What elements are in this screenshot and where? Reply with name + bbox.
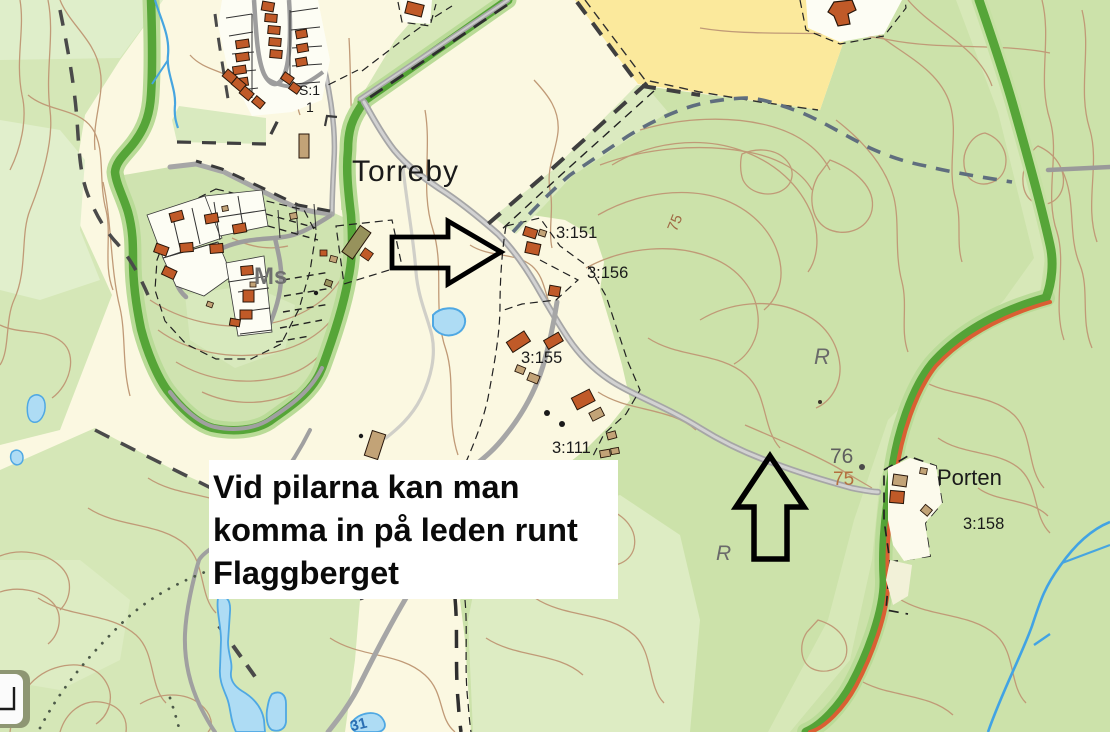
svg-text:R: R — [716, 542, 731, 565]
svg-text:Torreby: Torreby — [352, 155, 459, 188]
svg-text:Porten: Porten — [937, 465, 1002, 490]
svg-text:Vid pilarna kan man: Vid pilarna kan man — [213, 469, 519, 505]
svg-text:3:151: 3:151 — [556, 224, 597, 242]
svg-text:3:156: 3:156 — [587, 264, 628, 282]
svg-text:3:111: 3:111 — [552, 439, 591, 457]
svg-text:3:158: 3:158 — [963, 515, 1004, 533]
svg-text:1: 1 — [306, 99, 314, 115]
svg-text:75: 75 — [833, 469, 854, 490]
svg-text:Flaggberget: Flaggberget — [213, 555, 399, 591]
svg-text:komma in på leden runt: komma in på leden runt — [213, 512, 578, 548]
svg-text:76: 76 — [830, 445, 853, 468]
svg-text:3:155: 3:155 — [521, 349, 562, 367]
svg-text:S:1: S:1 — [299, 82, 320, 98]
svg-text:Ms: Ms — [254, 263, 287, 290]
svg-text:R: R — [814, 344, 830, 369]
